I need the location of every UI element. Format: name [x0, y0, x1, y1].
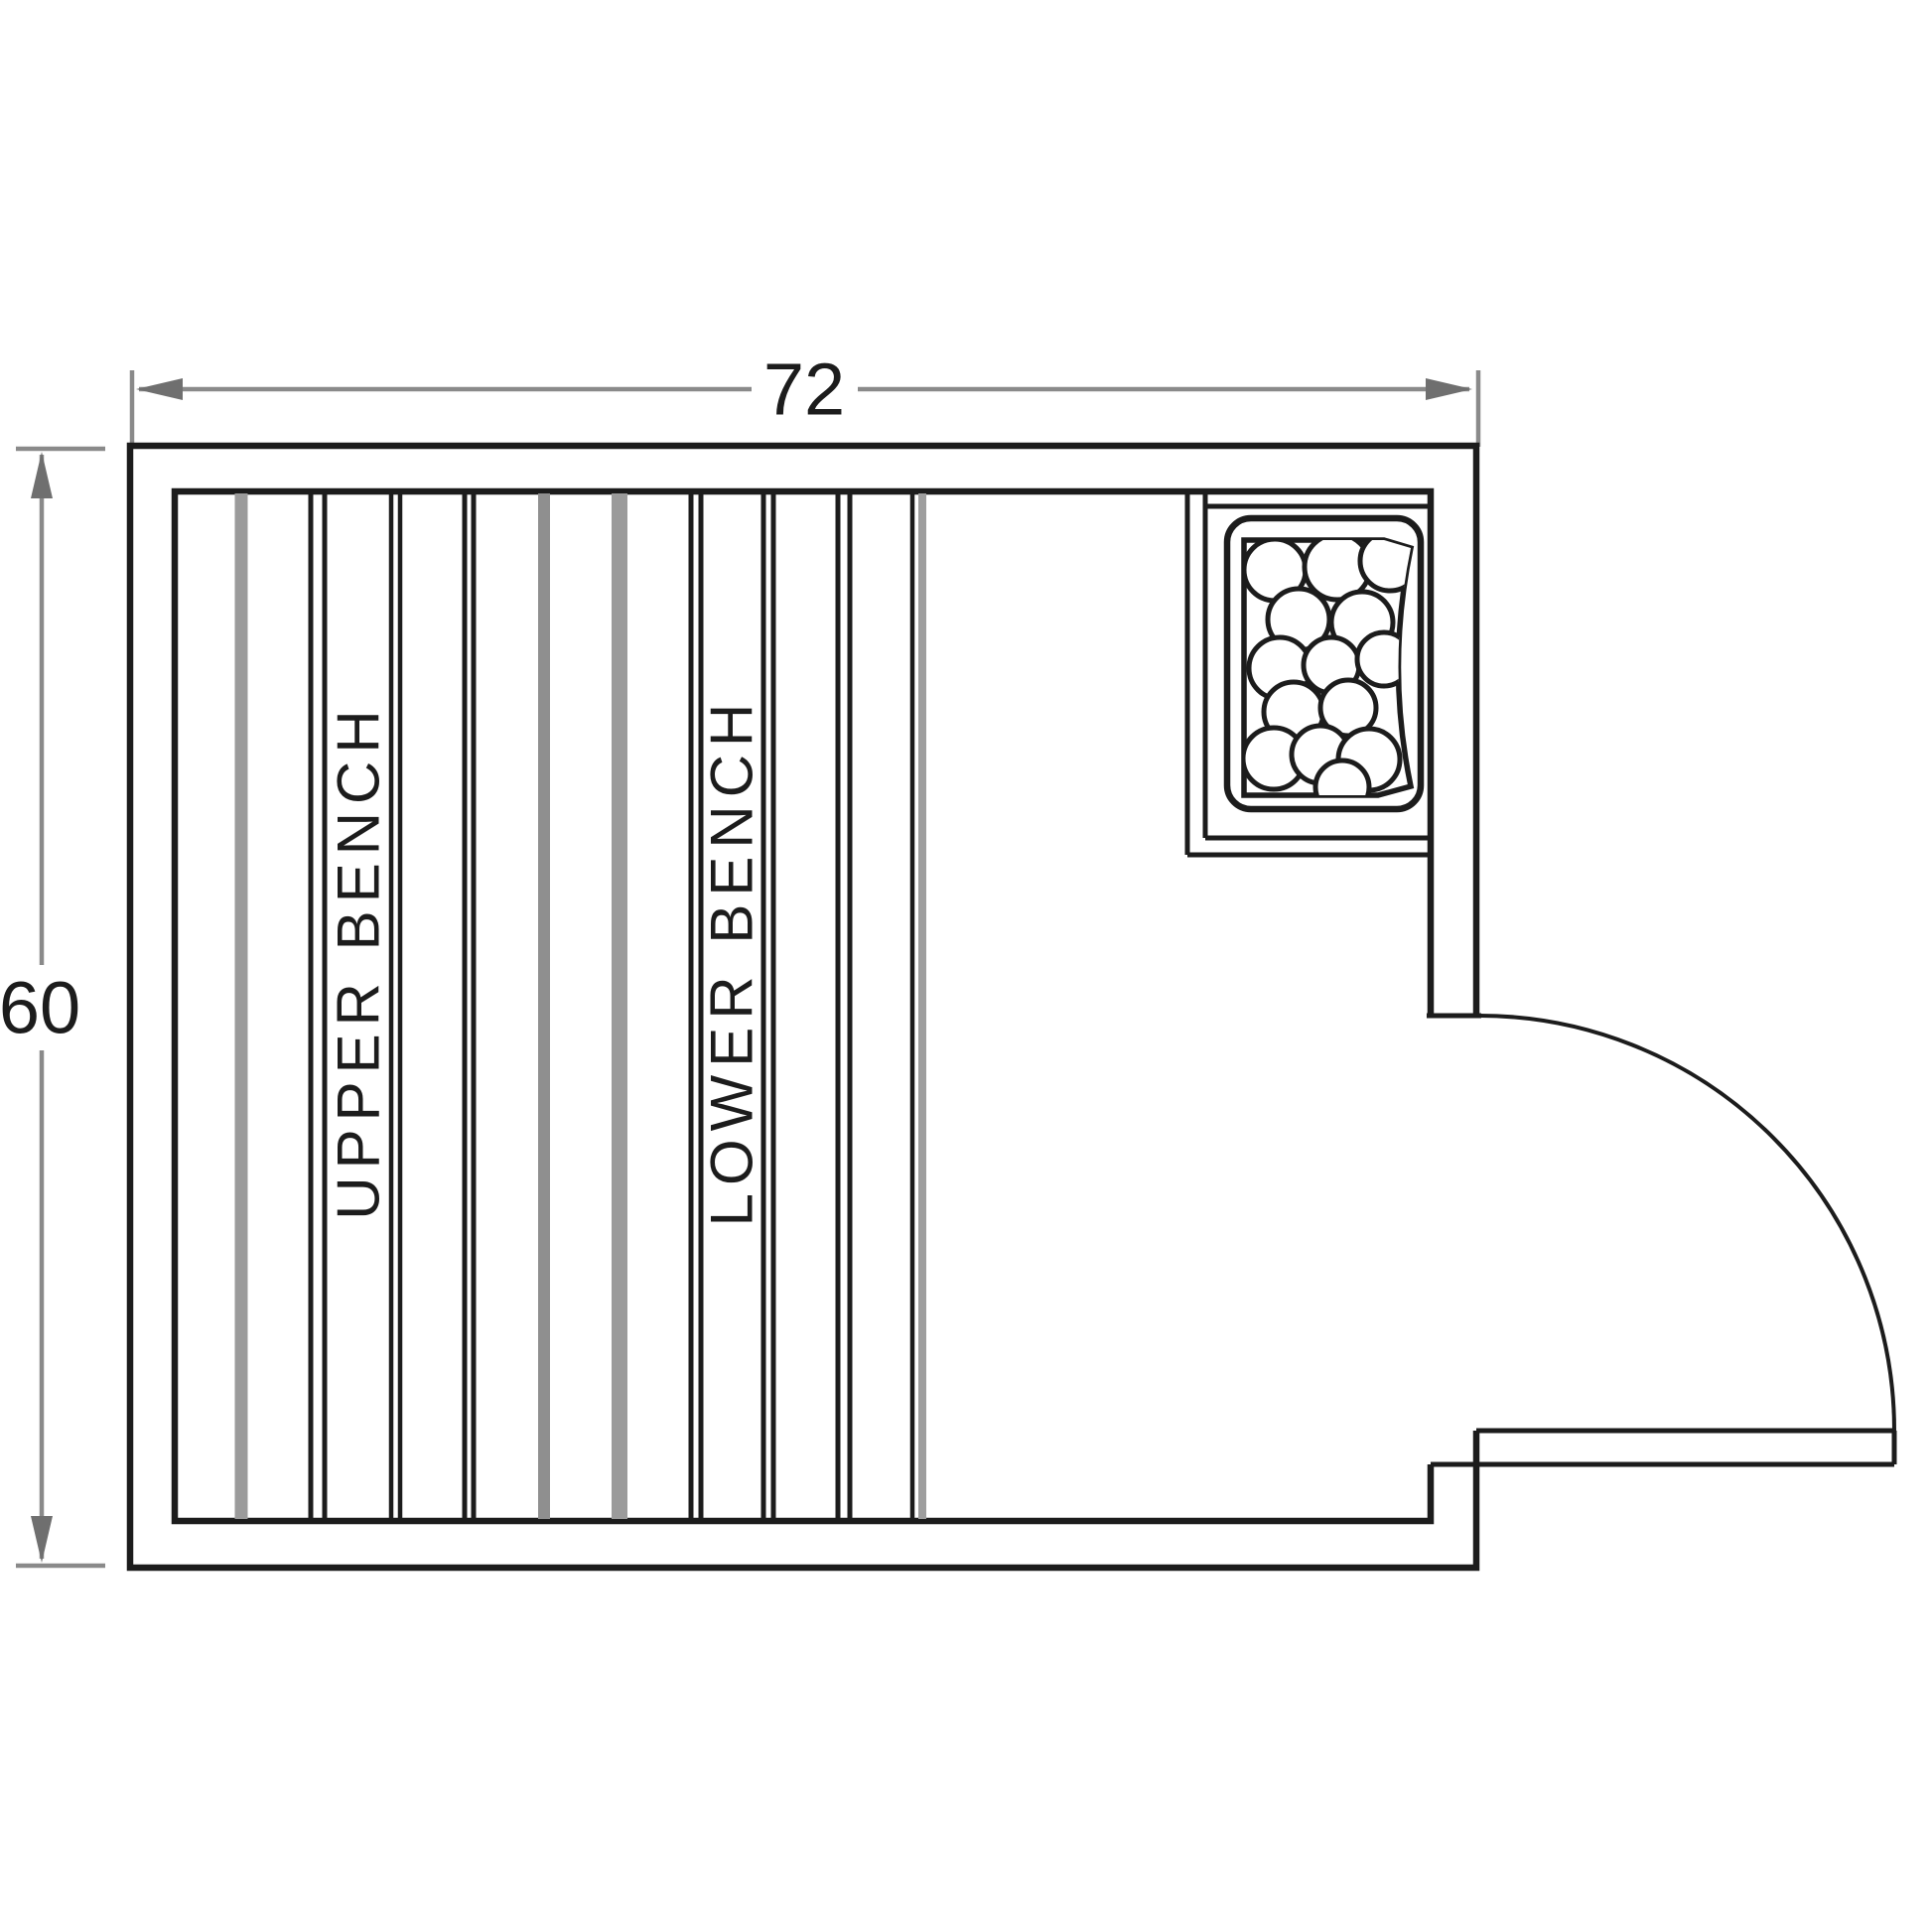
- upper-bench-label: UPPER BENCH: [326, 702, 392, 1219]
- arrowhead-right-icon: [1426, 378, 1472, 400]
- floor-plan-canvas: 72 60: [0, 0, 1932, 1932]
- height-dimension-label: 60: [0, 967, 80, 1049]
- arrowhead-down-icon: [31, 1516, 53, 1563]
- arrowhead-up-icon: [31, 452, 53, 498]
- sauna-floor-plan: 72 60: [0, 0, 1932, 1932]
- width-dimension-label: 72: [763, 348, 845, 431]
- heater-stones: [1243, 531, 1420, 814]
- height-dimension: 60: [0, 449, 105, 1566]
- lower-bench-label: LOWER BENCH: [699, 696, 765, 1227]
- width-dimension: 72: [132, 348, 1478, 448]
- door: [1431, 1016, 1894, 1464]
- arrowhead-left-icon: [136, 378, 183, 400]
- door-swing-arc: [1479, 1016, 1894, 1431]
- heater: [1227, 518, 1421, 814]
